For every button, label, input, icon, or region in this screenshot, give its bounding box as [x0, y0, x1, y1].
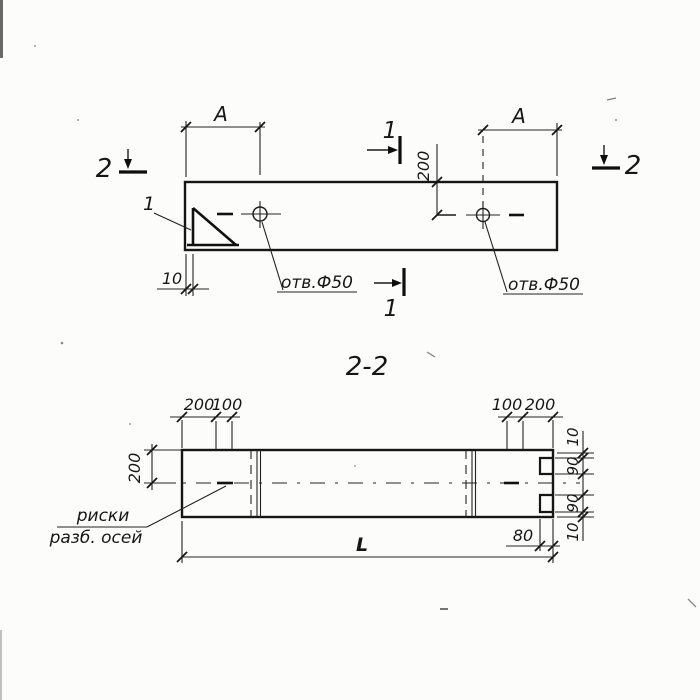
dim-200-section-label: 200: [125, 453, 144, 484]
note-line1: риски: [76, 506, 130, 526]
dims-top-right: 100 200: [492, 395, 563, 450]
section-1-bottom-label: 1: [384, 296, 399, 322]
section-1-top-label: 1: [383, 118, 398, 144]
section-mark-2-right: 2: [592, 145, 641, 181]
section-mark-2-left: 2: [96, 149, 147, 184]
section-2-left-label: 2: [96, 154, 113, 184]
dim-right-90-lower: 90: [564, 493, 582, 512]
scan-artifacts: [0, 0, 696, 700]
dims-top-left: 200 100: [170, 395, 242, 450]
hole-label-right: отв.Ф50: [485, 222, 583, 295]
dim-a-left: A: [181, 102, 265, 177]
dim-80-label: 80: [513, 526, 533, 545]
dim-tl-100: 100: [212, 395, 243, 414]
section-title: 2-2: [346, 352, 388, 382]
notch-lower: [540, 495, 553, 512]
dim-200-plan-label: 200: [414, 151, 433, 182]
dim-right-90-upper: 90: [564, 456, 582, 475]
section-view: 2-2: [49, 352, 594, 563]
detail-callout-label: 1: [143, 193, 155, 215]
section-mark-1-top: 1: [367, 118, 400, 164]
detail-callout-1: 1: [143, 193, 191, 230]
dim-tl-200: 200: [184, 395, 215, 414]
dim-10-plan: 10: [157, 254, 209, 296]
dim-a-right-label: A: [510, 104, 526, 128]
note-line2: разб. осей: [49, 528, 143, 548]
plan-beam-outline: [185, 182, 557, 250]
drawing-sheet: A A 200 1: [0, 0, 700, 700]
dim-tr-200: 200: [525, 395, 556, 414]
dim-right-10-bottom: 10: [564, 522, 582, 541]
section-2-right-label: 2: [625, 151, 642, 181]
dim-a-left-label: A: [212, 102, 228, 126]
dim-a-right: A: [478, 104, 562, 207]
dim-80: 80: [506, 519, 560, 551]
dim-10-plan-label: 10: [162, 269, 182, 288]
hole-label-right-text: отв.Ф50: [508, 275, 580, 295]
hole-label-left-text: отв.Ф50: [281, 273, 353, 293]
plan-view: A A 200 1: [96, 102, 642, 322]
dims-right-chain: 10 90 90 10: [555, 427, 594, 541]
hole-right: [466, 202, 524, 229]
hole-left: [217, 201, 281, 228]
dim-right-10-top: 10: [564, 427, 582, 446]
hole-label-left: отв.Ф50: [262, 222, 357, 293]
technical-drawing: A A 200 1: [0, 0, 700, 700]
section-mark-1-bottom: 1: [374, 268, 404, 322]
dim-200-section: 200: [125, 444, 182, 490]
dim-L-label: L: [356, 534, 368, 556]
notch-upper: [540, 458, 553, 474]
dim-L: L: [177, 519, 558, 563]
dim-tr-100: 100: [492, 395, 523, 414]
